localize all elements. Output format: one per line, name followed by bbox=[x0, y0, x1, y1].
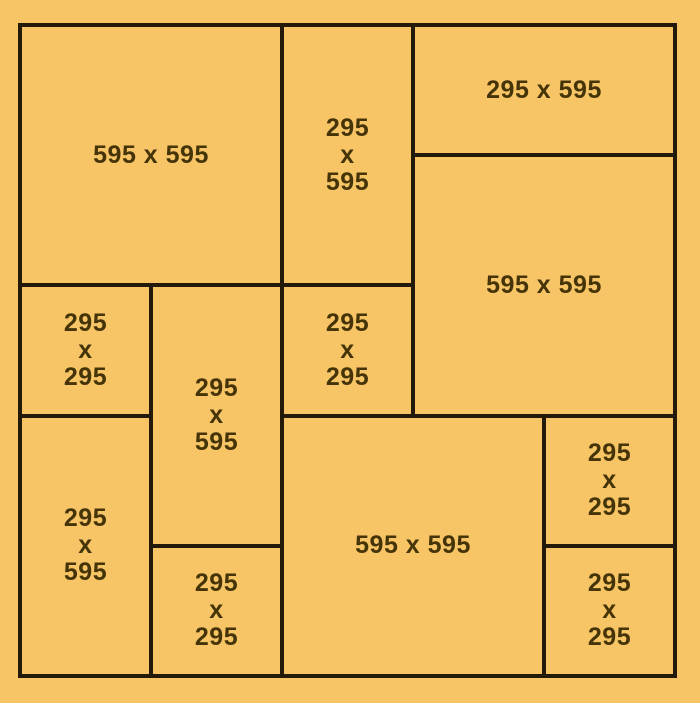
piece-595x595-top-left: 595 x 595 bbox=[22, 27, 280, 283]
sheet-outline: 595 x 595 295 x 595 295 x 595 595 x 595 … bbox=[18, 23, 677, 678]
piece-label: 295 x 295 bbox=[588, 440, 631, 521]
piece-595x595-bottom-center: 595 x 595 bbox=[284, 418, 542, 674]
piece-label: 295 x 595 bbox=[326, 115, 369, 196]
piece-295x595-top-middle: 295 x 595 bbox=[284, 27, 411, 283]
piece-295x595-middle: 295 x 595 bbox=[153, 287, 280, 543]
piece-label: 295 x 595 bbox=[195, 375, 238, 456]
piece-label: 295 x 595 bbox=[486, 77, 602, 104]
piece-295x295-bottom-middle: 295 x 295 bbox=[153, 548, 280, 674]
piece-label: 595 x 595 bbox=[93, 142, 209, 169]
piece-595x595-right: 595 x 595 bbox=[415, 157, 673, 413]
cutting-diagram: 595 x 595 295 x 595 295 x 595 595 x 595 … bbox=[0, 0, 700, 703]
piece-295x595-top-right: 295 x 595 bbox=[415, 27, 673, 153]
piece-label: 295 x 295 bbox=[326, 310, 369, 391]
piece-295x295-mid-left: 295 x 295 bbox=[22, 287, 149, 413]
piece-label: 595 x 595 bbox=[486, 272, 602, 299]
piece-295x295-center: 295 x 295 bbox=[284, 287, 411, 413]
piece-295x295-right-lower: 295 x 295 bbox=[546, 548, 673, 674]
piece-label: 295 x 595 bbox=[64, 505, 107, 586]
piece-label: 295 x 295 bbox=[195, 570, 238, 651]
piece-label: 295 x 295 bbox=[588, 570, 631, 651]
piece-label: 595 x 595 bbox=[355, 532, 471, 559]
piece-295x595-bottom-left: 295 x 595 bbox=[22, 418, 149, 674]
piece-295x295-right-upper: 295 x 295 bbox=[546, 418, 673, 544]
piece-label: 295 x 295 bbox=[64, 310, 107, 391]
